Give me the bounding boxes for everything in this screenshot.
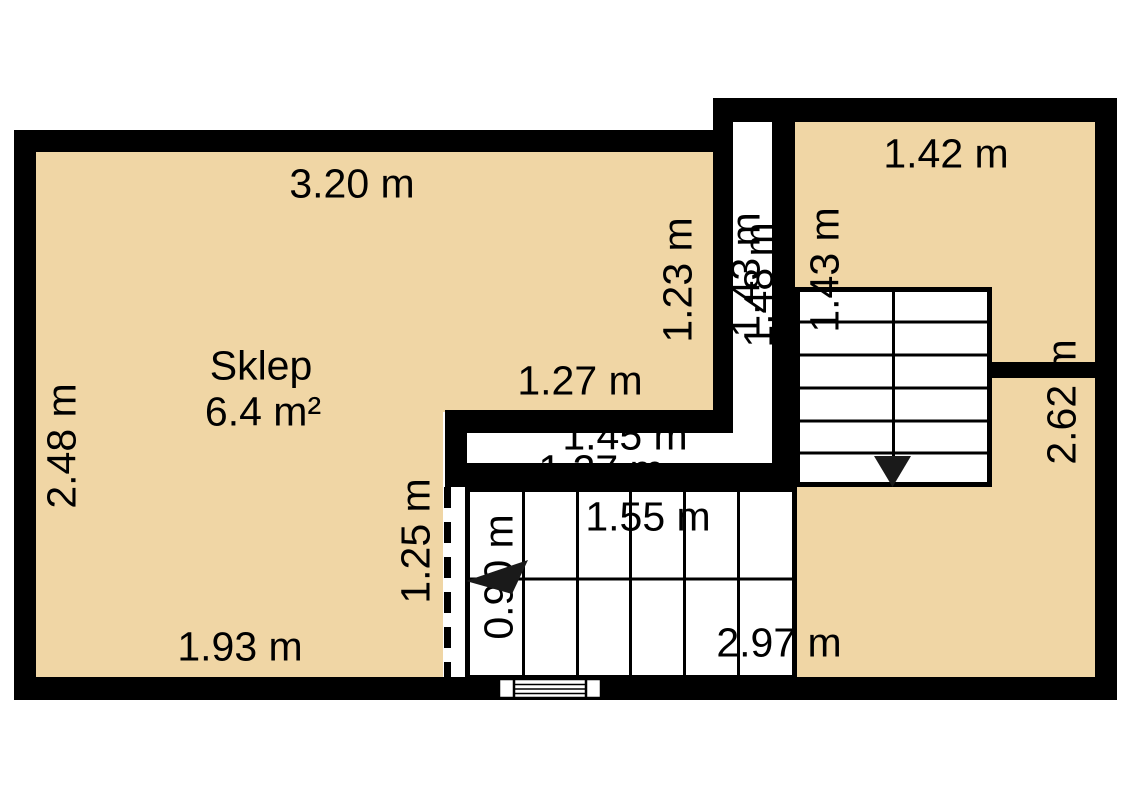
- room-area-label: 6.4 m²: [205, 392, 321, 433]
- dim-corridor-outer: 1.48 m: [739, 222, 780, 347]
- dim-stair-run-width: 0.90 m: [479, 514, 520, 639]
- wall-outer-right: [1095, 98, 1117, 700]
- dim-sklep-lower-height: 1.25 m: [396, 478, 437, 603]
- wall-hall-top: [445, 410, 733, 433]
- dim-sklep-inner-width: 1.27 m: [517, 361, 642, 402]
- room-name-label: Sklep: [210, 346, 313, 387]
- wall-sklep-top: [14, 130, 733, 152]
- wall-right-top: [713, 98, 1117, 122]
- floorplan-canvas: 1.45 m 1.27 m Sklep 6.4 m² 3.20 m 2.48 m…: [0, 0, 1131, 800]
- dim-left-height: 2.48 m: [42, 383, 83, 508]
- wall-hall-left-cap: [445, 410, 467, 487]
- dim-right-room-height: 1.43 m: [805, 207, 846, 332]
- dim-sklep-right-height: 1.23 m: [658, 217, 699, 342]
- wall-hall-bottom: [445, 463, 797, 487]
- dim-bottom-right-width: 2.97 m: [716, 623, 841, 664]
- dim-stair-run-length: 1.55 m: [585, 497, 710, 538]
- dim-right-room-width: 1.42 m: [883, 134, 1008, 175]
- dim-top-width: 3.20 m: [289, 164, 414, 205]
- wall-outer-left: [14, 130, 36, 700]
- dim-right-total-height: 2.62 m: [1042, 339, 1083, 464]
- wall-bottom: [14, 677, 1117, 700]
- dim-bottom-left-width: 1.93 m: [177, 627, 302, 668]
